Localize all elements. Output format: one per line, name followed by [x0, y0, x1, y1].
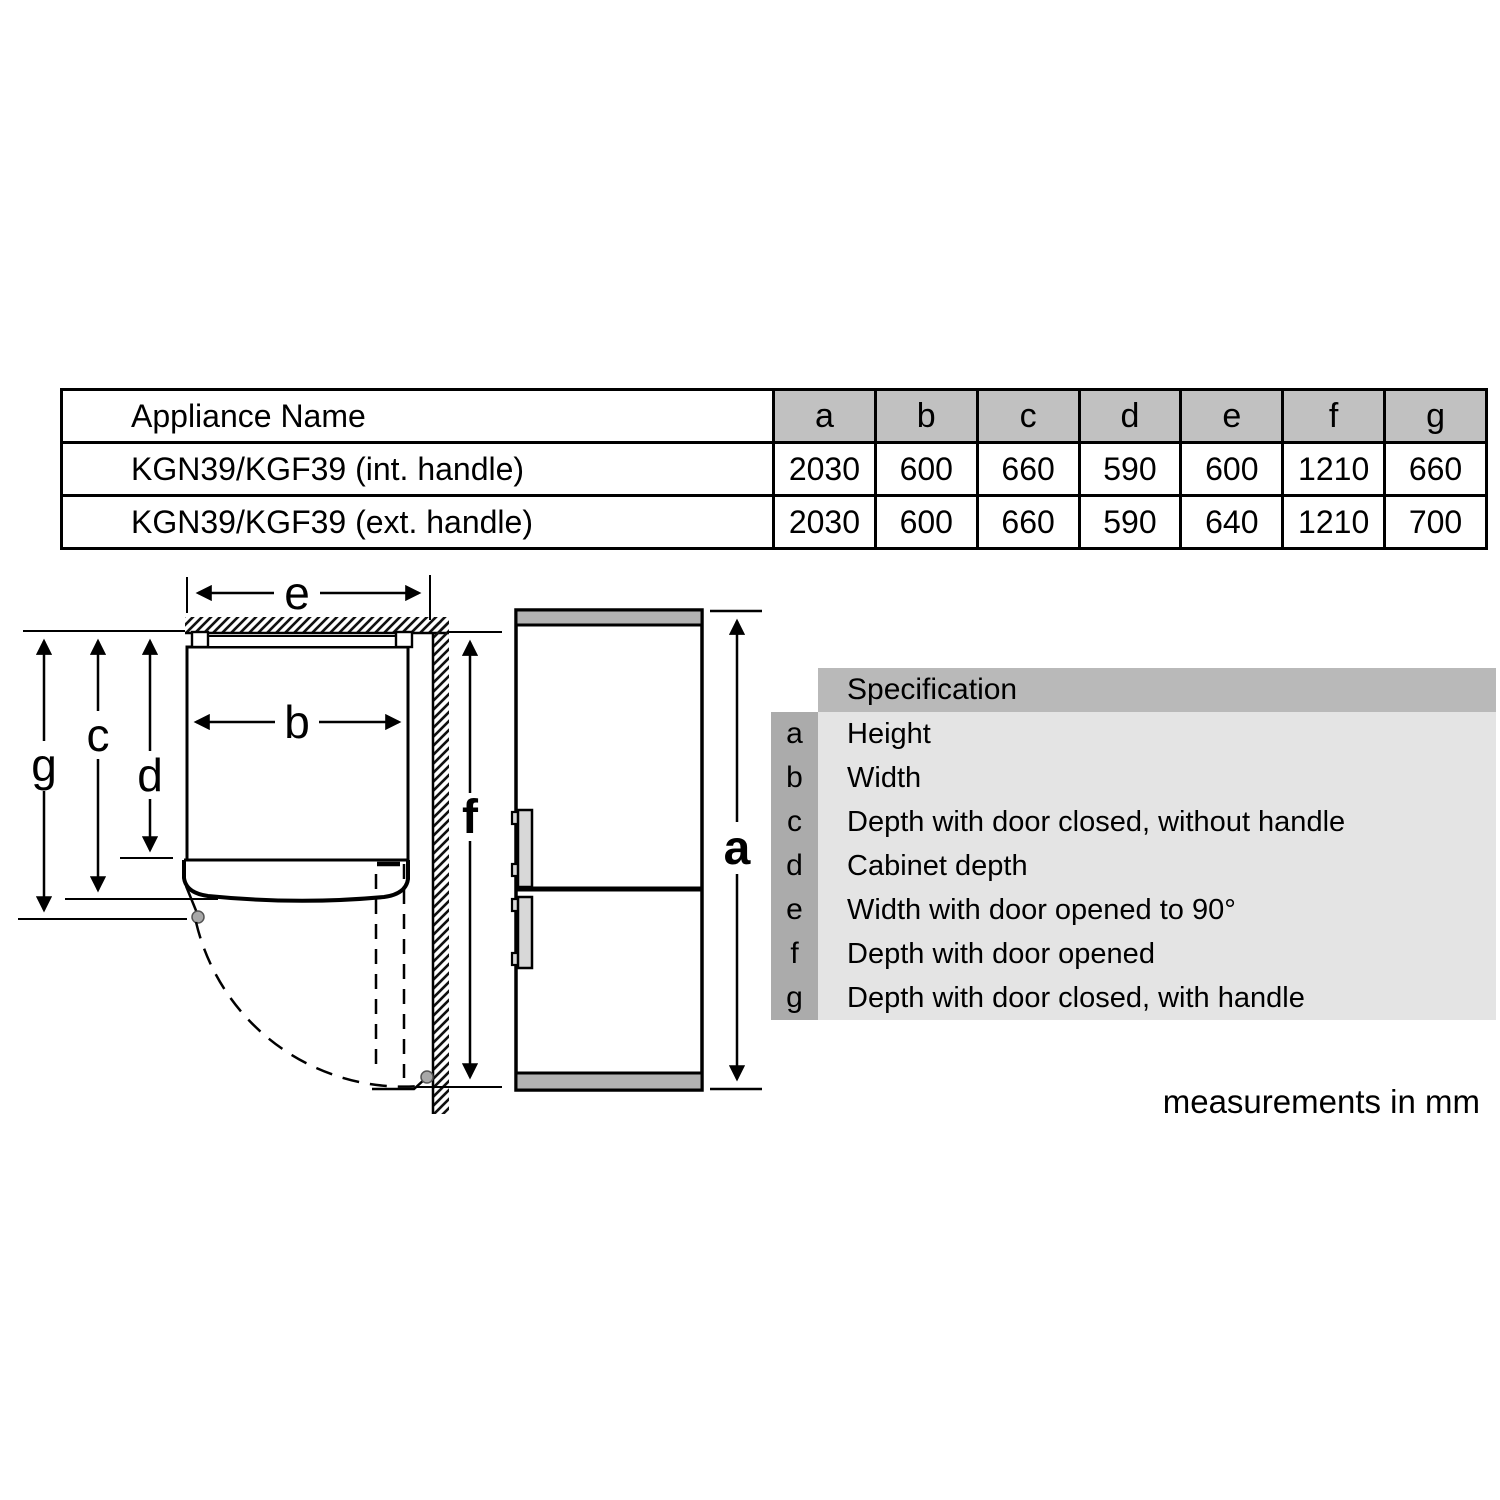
- list-item: a Height: [771, 712, 1496, 756]
- col-header-e: e: [1181, 390, 1283, 443]
- wall-spacer-left: [192, 632, 208, 647]
- value-int-d: 590: [1079, 443, 1181, 496]
- wall-spacer-right: [396, 632, 412, 647]
- col-header-a: a: [774, 390, 876, 443]
- d-dimension-label: d: [137, 749, 163, 801]
- legend-desc-a: Height: [818, 712, 1496, 756]
- value-int-c: 660: [977, 443, 1079, 496]
- appliance-name-int-handle: KGN39/KGF39 (int. handle): [62, 443, 774, 496]
- legend-desc-f: Depth with door opened: [818, 932, 1496, 976]
- dimensions-table: Appliance Name a b c d e f g KGN39/KGF39…: [60, 388, 1488, 550]
- lower-door-handle: [518, 897, 532, 968]
- value-ext-c: 660: [977, 496, 1079, 549]
- col-header-c: c: [977, 390, 1079, 443]
- legend-key-d: d: [771, 844, 818, 888]
- value-ext-g: 700: [1385, 496, 1487, 549]
- legend-key-a: a: [771, 712, 818, 756]
- legend-desc-g: Depth with door closed, with handle: [818, 976, 1496, 1020]
- table-row: KGN39/KGF39 (int. handle) 2030 600 660 5…: [62, 443, 1487, 496]
- list-item: f Depth with door opened: [771, 932, 1496, 976]
- legend-header: Specification: [818, 668, 1496, 712]
- col-header-d: d: [1079, 390, 1181, 443]
- appliance-spec-sheet: Appliance Name a b c d e f g KGN39/KGF39…: [0, 0, 1500, 1500]
- appliance-name-ext-handle: KGN39/KGF39 (ext. handle): [62, 496, 774, 549]
- value-ext-d: 590: [1079, 496, 1181, 549]
- legend-key-e: e: [771, 888, 818, 932]
- legend-desc-b: Width: [818, 756, 1496, 800]
- value-int-g: 660: [1385, 443, 1487, 496]
- legend-key-c: c: [771, 800, 818, 844]
- door-closed: [184, 860, 408, 901]
- list-item: c Depth with door closed, without handle: [771, 800, 1496, 844]
- wall-top-hatch: [185, 617, 449, 633]
- legend-table: Specification a Height b Width c Depth w…: [771, 668, 1496, 1020]
- appliance-name-header: Appliance Name: [62, 390, 774, 443]
- f-extension-lines: [417, 632, 502, 1087]
- col-header-f: f: [1283, 390, 1385, 443]
- value-int-b: 600: [875, 443, 977, 496]
- list-item: b Width: [771, 756, 1496, 800]
- legend-key-f: f: [771, 932, 818, 976]
- legend-desc-d: Cabinet depth: [818, 844, 1496, 888]
- legend-desc-e: Width with door opened to 90°: [818, 888, 1496, 932]
- f-dimension-label: f: [462, 791, 479, 844]
- door-corner-dot-open: [421, 1071, 433, 1083]
- door-swing-arc: [196, 922, 420, 1087]
- value-ext-b: 600: [875, 496, 977, 549]
- table-row: KGN39/KGF39 (ext. handle) 2030 600 660 5…: [62, 496, 1487, 549]
- value-ext-f: 1210: [1283, 496, 1385, 549]
- value-ext-e: 640: [1181, 496, 1283, 549]
- cabinet-top-view: [187, 647, 408, 860]
- door-corner-dot-closed: [192, 911, 204, 923]
- fridge-body: [516, 610, 702, 1090]
- front-view: a: [512, 610, 762, 1090]
- col-header-g: g: [1385, 390, 1487, 443]
- col-header-b: b: [875, 390, 977, 443]
- a-dimension-label: a: [724, 822, 751, 875]
- b-dimension-label: b: [284, 696, 310, 748]
- legend-key-g: g: [771, 976, 818, 1020]
- value-ext-a: 2030: [774, 496, 876, 549]
- wall-right-hatch: [433, 622, 449, 1114]
- value-int-a: 2030: [774, 443, 876, 496]
- cabinet-back-panel: [207, 636, 397, 647]
- fridge-top-cap: [516, 610, 702, 625]
- units-note: measurements in mm: [900, 1083, 1480, 1121]
- g-dimension-label: g: [31, 739, 57, 791]
- list-item: g Depth with door closed, with handle: [771, 976, 1496, 1020]
- list-item: e Width with door opened to 90°: [771, 888, 1496, 932]
- upper-door-handle: [518, 810, 532, 887]
- value-int-f: 1210: [1283, 443, 1385, 496]
- technical-drawing: e b d: [0, 560, 780, 1130]
- e-dimension-label: e: [284, 567, 310, 619]
- c-dimension-label: c: [87, 709, 110, 761]
- legend-desc-c: Depth with door closed, without handle: [818, 800, 1496, 844]
- value-int-e: 600: [1181, 443, 1283, 496]
- list-item: d Cabinet depth: [771, 844, 1496, 888]
- fridge-bottom-cap: [516, 1073, 702, 1090]
- legend-key-b: b: [771, 756, 818, 800]
- top-view: e b d: [18, 567, 502, 1114]
- dimensions-table-header-row: Appliance Name a b c d e f g: [62, 390, 1487, 443]
